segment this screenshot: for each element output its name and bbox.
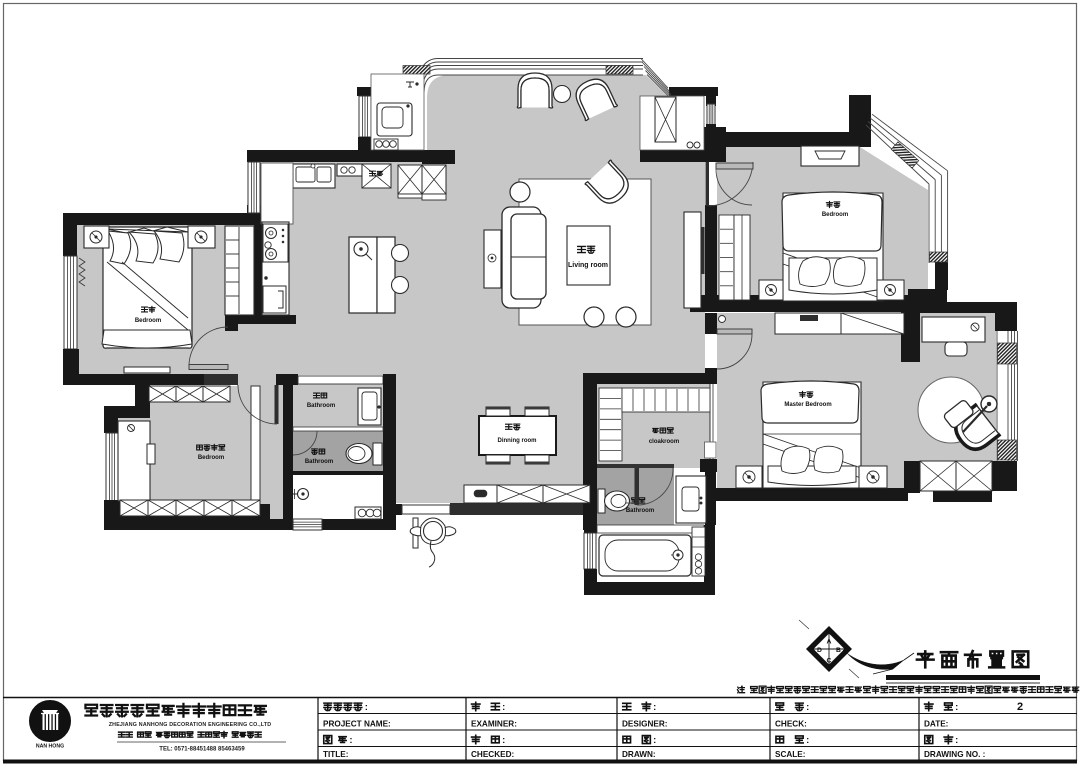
svg-text::: : [365, 702, 368, 713]
svg-text:Master Bedroom: Master Bedroom [784, 402, 831, 408]
svg-text:EXAMINER:: EXAMINER: [471, 720, 517, 729]
svg-text:DATE:: DATE: [924, 720, 948, 729]
svg-text::: : [502, 735, 505, 746]
svg-text::: : [806, 702, 809, 713]
svg-text:Bedroom: Bedroom [135, 318, 161, 324]
svg-text:C: C [827, 658, 832, 665]
svg-text:B: B [836, 647, 841, 654]
svg-text:CHECK:: CHECK: [775, 720, 807, 729]
svg-text:Bathroom: Bathroom [305, 459, 333, 465]
svg-text:DRAWN:: DRAWN: [622, 750, 656, 759]
svg-text:D: D [817, 647, 822, 654]
svg-text:A: A [827, 639, 832, 646]
svg-text:CHECKED:: CHECKED: [471, 750, 514, 759]
svg-text:ZHEJIANG NANHONG DECORATION EN: ZHEJIANG NANHONG DECORATION ENGINEERING … [109, 722, 272, 728]
svg-text:SCALE:: SCALE: [775, 750, 805, 759]
svg-text:DRAWING NO. :: DRAWING NO. : [924, 750, 985, 759]
svg-text:Dinning room: Dinning room [498, 438, 537, 444]
svg-text::: : [955, 702, 958, 713]
svg-text:cloakroom: cloakroom [649, 439, 679, 445]
svg-text:TEL: 0571-88451488 85463459: TEL: 0571-88451488 85463459 [159, 747, 245, 753]
svg-text::: : [653, 735, 656, 746]
svg-text:Bathroom: Bathroom [626, 508, 654, 514]
svg-text:Bedroom: Bedroom [822, 212, 848, 218]
svg-text:TITLE:: TITLE: [323, 750, 348, 759]
svg-text:Living room: Living room [568, 262, 608, 269]
svg-text::: : [653, 702, 656, 713]
svg-text:2: 2 [1017, 701, 1023, 713]
svg-text:Bathroom: Bathroom [307, 403, 335, 409]
svg-text::: : [349, 735, 352, 746]
svg-text:PROJECT NAME:: PROJECT NAME: [323, 720, 391, 729]
svg-text:NAN HONG: NAN HONG [36, 744, 64, 750]
svg-text::: : [955, 735, 958, 746]
svg-text::: : [806, 735, 809, 746]
svg-text::: : [502, 702, 505, 713]
svg-text:Bedroom: Bedroom [198, 455, 224, 461]
svg-text:DESIGNER:: DESIGNER: [622, 720, 668, 729]
